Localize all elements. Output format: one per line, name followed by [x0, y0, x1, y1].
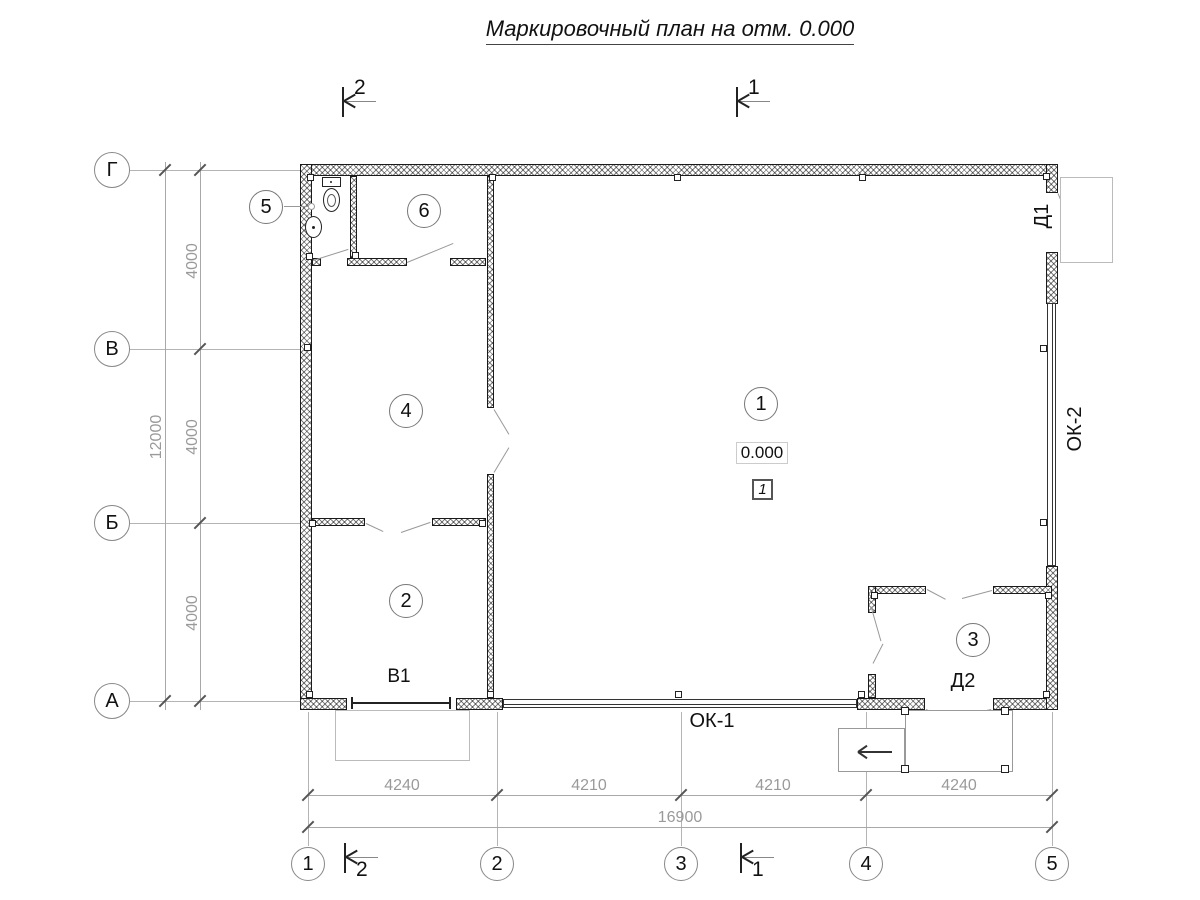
- column-marker: [1043, 173, 1050, 180]
- ramp-direction-arrow: [858, 751, 892, 753]
- room-number: 3: [967, 629, 978, 652]
- door-swing-line: [962, 590, 992, 599]
- column-marker: [858, 691, 865, 698]
- wall-segment: [456, 698, 503, 710]
- toilet-bowl-inner-icon: [327, 194, 336, 207]
- level-value: 0.000: [741, 443, 784, 463]
- window-glazing-line: [504, 704, 856, 705]
- wall-segment: [350, 176, 357, 258]
- dim-text: 4210: [733, 777, 813, 795]
- axis-label: 5: [1046, 853, 1057, 876]
- wall-segment: [1046, 252, 1058, 304]
- door-swing-line: [494, 409, 510, 434]
- column-marker: [306, 691, 313, 698]
- dim-text-total: 12000: [148, 407, 166, 467]
- window-label-ok1: ОК-1: [662, 710, 762, 733]
- door-swing-line: [494, 447, 510, 472]
- room-bubble-2: 2: [389, 584, 423, 618]
- door-label-d2: Д2: [933, 670, 993, 693]
- column-marker: [487, 691, 494, 698]
- wall-segment: [450, 258, 486, 266]
- axis-bubble-col-4: 4: [849, 847, 883, 881]
- zone-number: 1: [758, 481, 766, 498]
- axis-bubble-row-b: Б: [94, 505, 130, 541]
- wall-segment: [312, 518, 365, 526]
- column-marker: [1040, 345, 1047, 352]
- room-number: 6: [418, 200, 429, 223]
- leader-line: [284, 206, 308, 207]
- room-bubble-4: 4: [389, 394, 423, 428]
- room-number: 4: [400, 400, 411, 423]
- axis-bubble-col-2: 2: [480, 847, 514, 881]
- dim-text: 4000: [184, 583, 202, 643]
- door-landing-outline: [1060, 177, 1113, 263]
- door-swing-line: [401, 522, 431, 533]
- column-marker: [674, 174, 681, 181]
- door-label-d1: Д1: [1031, 186, 1049, 246]
- column-marker: [859, 174, 866, 181]
- axis-bubble-col-5: 5: [1035, 847, 1069, 881]
- axis-bubble-row-a: А: [94, 683, 130, 719]
- axis-label: 1: [302, 853, 313, 876]
- section-label: 2: [354, 76, 366, 100]
- door-swing-line: [873, 644, 884, 664]
- ramp-outline: [838, 728, 905, 772]
- zone-reference-box: 1: [752, 479, 773, 500]
- axis-bubble-row-v: В: [94, 331, 130, 367]
- leader-node: [308, 203, 315, 210]
- axis-line: [130, 170, 300, 171]
- room-number: 1: [755, 393, 766, 416]
- wall-segment: [868, 674, 876, 698]
- axis-bubble-col-3: 3: [664, 847, 698, 881]
- room-number: 2: [400, 590, 411, 613]
- axis-label: Г: [107, 159, 118, 182]
- section-label: 1: [748, 76, 760, 100]
- column-marker: [479, 520, 486, 527]
- dimension-line: [308, 827, 1052, 828]
- wall-segment: [300, 164, 312, 710]
- room-bubble-3: 3: [956, 623, 990, 657]
- window-ok2: [1047, 303, 1056, 566]
- axis-label: А: [105, 690, 118, 713]
- dim-text: 4240: [362, 777, 442, 795]
- dim-text-total: 16900: [640, 809, 720, 827]
- section-label: 2: [356, 858, 368, 882]
- column-marker: [307, 174, 314, 181]
- dim-text: 4000: [184, 407, 202, 467]
- porch-outline: [905, 710, 1013, 772]
- column-marker: [304, 344, 311, 351]
- wall-segment: [487, 176, 494, 408]
- room-bubble-1: 1: [744, 387, 778, 421]
- column-marker: [1045, 592, 1052, 599]
- gate-leaf: [352, 702, 450, 704]
- fixture-dot: [330, 181, 332, 183]
- axis-label: Б: [105, 512, 118, 535]
- dim-text: 4000: [184, 231, 202, 291]
- axis-label: В: [105, 338, 118, 361]
- porch-post-marker: [901, 707, 909, 715]
- extension-line: [497, 712, 498, 846]
- porch-post-marker: [1001, 765, 1009, 773]
- column-marker: [1040, 519, 1047, 526]
- wall-segment: [300, 698, 347, 710]
- axis-line: [130, 701, 300, 702]
- column-marker: [352, 252, 359, 259]
- axis-line: [130, 349, 300, 350]
- fixture-dot: [312, 226, 315, 229]
- column-marker: [489, 174, 496, 181]
- gate-label: В1: [369, 666, 429, 688]
- apron-outline: [335, 710, 470, 761]
- column-marker: [306, 253, 313, 260]
- door-swing-line: [366, 523, 384, 532]
- axis-bubble-row-g: Г: [94, 152, 130, 188]
- axis-bubble-col-1: 1: [291, 847, 325, 881]
- column-marker: [675, 691, 682, 698]
- room-bubble-6: 6: [407, 194, 441, 228]
- axis-label: 3: [675, 853, 686, 876]
- column-marker: [1043, 691, 1050, 698]
- column-marker: [309, 520, 316, 527]
- room-number: 5: [260, 196, 271, 219]
- porch-post-marker: [901, 765, 909, 773]
- gate-end-tick: [351, 697, 353, 709]
- door-swing-line: [313, 249, 349, 261]
- wall-segment: [993, 586, 1052, 594]
- column-marker: [871, 592, 878, 599]
- dim-text: 4210: [549, 777, 629, 795]
- axis-label: 4: [860, 853, 871, 876]
- room-bubble-5: 5: [249, 190, 283, 224]
- axis-label: 2: [491, 853, 502, 876]
- level-mark: 0.000: [736, 442, 788, 464]
- wall-segment: [857, 698, 925, 710]
- porch-post-marker: [1001, 707, 1009, 715]
- door-swing-line: [927, 589, 946, 600]
- window-ok1: [503, 699, 857, 708]
- gate-end-tick: [449, 697, 451, 709]
- drawing-title: Маркировочный план на отм. 0.000: [440, 16, 900, 42]
- axis-line: [130, 523, 300, 524]
- window-label-ok2: ОК-2: [1064, 389, 1082, 469]
- wall-segment: [487, 474, 494, 698]
- wall-segment: [432, 518, 486, 526]
- floor-plan-drawing: Маркировочный план на отм. 0.000 Г В Б А…: [0, 0, 1200, 900]
- door-swing-line: [407, 243, 454, 263]
- dim-text: 4240: [919, 777, 999, 795]
- section-label: 1: [752, 858, 764, 882]
- wall-segment: [347, 258, 407, 266]
- window-glazing-line: [1052, 304, 1053, 565]
